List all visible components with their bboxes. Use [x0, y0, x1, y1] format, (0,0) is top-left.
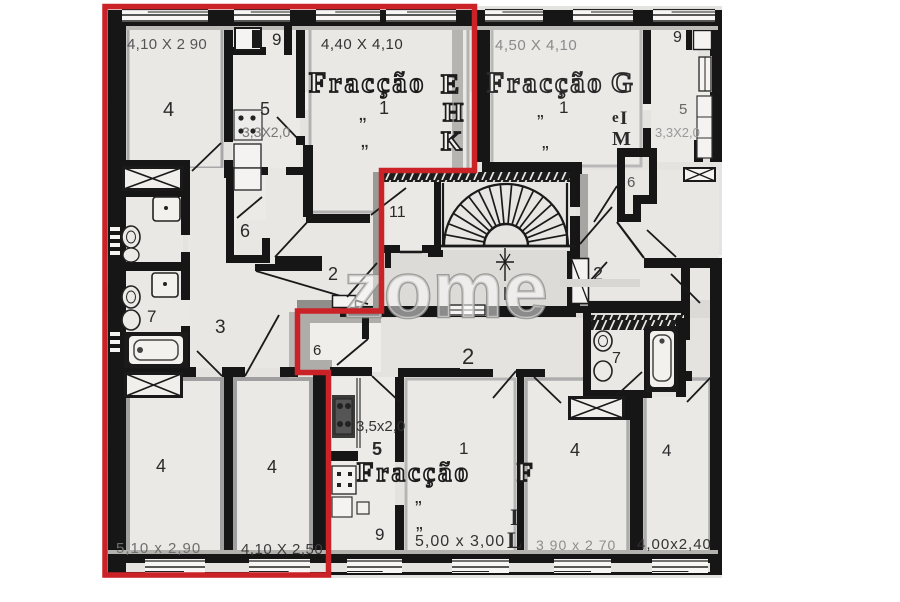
svg-text:„: „: [416, 512, 423, 534]
svg-text:5,10 x 2,90: 5,10 x 2,90: [116, 540, 201, 557]
svg-text:5,00 x 3,00: 5,00 x 3,00: [415, 533, 505, 550]
svg-text:„: „: [415, 486, 422, 508]
svg-text:„: „: [542, 131, 549, 153]
svg-text:„: „: [361, 127, 368, 152]
svg-text:F: F: [517, 458, 533, 487]
svg-text:4: 4: [662, 441, 671, 460]
svg-text:e: e: [612, 110, 619, 126]
svg-text:4: 4: [570, 440, 580, 460]
svg-text:9: 9: [272, 30, 281, 49]
svg-text:5: 5: [372, 439, 382, 459]
svg-text:4: 4: [163, 99, 174, 121]
svg-text:„: „: [359, 100, 366, 125]
svg-text:6: 6: [240, 221, 250, 241]
svg-text:6: 6: [627, 174, 635, 191]
svg-text:3,5x2,0: 3,5x2,0: [356, 418, 405, 435]
svg-text:4,10 X 2,50: 4,10 X 2,50: [241, 541, 323, 558]
svg-text:1: 1: [559, 98, 568, 117]
svg-text:K: K: [441, 126, 462, 156]
svg-text:11: 11: [389, 204, 406, 221]
svg-text:2: 2: [328, 264, 338, 284]
svg-text:1: 1: [379, 98, 389, 118]
svg-text:5: 5: [679, 101, 687, 118]
svg-text:9: 9: [375, 525, 384, 544]
svg-text:I: I: [510, 505, 519, 530]
svg-text:3: 3: [215, 317, 226, 338]
svg-text:H: H: [443, 98, 463, 127]
svg-text:4,10 X 2 90: 4,10 X 2 90: [127, 36, 207, 53]
svg-text:3 90 x 2 70: 3 90 x 2 70: [536, 537, 616, 553]
svg-text:9: 9: [673, 29, 682, 46]
svg-text:4,40 X 4,10: 4,40 X 4,10: [321, 36, 403, 53]
svg-text:6: 6: [313, 342, 321, 359]
svg-text:5: 5: [260, 99, 270, 119]
svg-text:Fracção: Fracção: [357, 457, 471, 487]
svg-text:1: 1: [459, 439, 468, 458]
svg-text:I: I: [620, 108, 627, 129]
svg-text:Fracção: Fracção: [487, 68, 604, 99]
svg-text:G: G: [611, 68, 633, 99]
svg-text:L: L: [507, 528, 522, 553]
svg-text:7: 7: [612, 350, 621, 367]
svg-text:3,3X2,0: 3,3X2,0: [655, 125, 700, 140]
svg-text:4: 4: [156, 456, 166, 476]
svg-text:zome: zome: [344, 245, 548, 334]
svg-text:3,3X2,0: 3,3X2,0: [242, 124, 290, 140]
svg-text:Fracção: Fracção: [309, 68, 426, 99]
svg-text:2: 2: [462, 344, 474, 369]
svg-text:7: 7: [147, 307, 156, 326]
svg-text:„: „: [537, 100, 544, 122]
svg-text:M: M: [612, 128, 631, 150]
svg-text:4,50 X 4,10: 4,50 X 4,10: [495, 37, 577, 54]
svg-text:4: 4: [267, 457, 277, 477]
svg-text:4,00x2,40: 4,00x2,40: [637, 536, 712, 553]
svg-text:E: E: [441, 69, 459, 99]
